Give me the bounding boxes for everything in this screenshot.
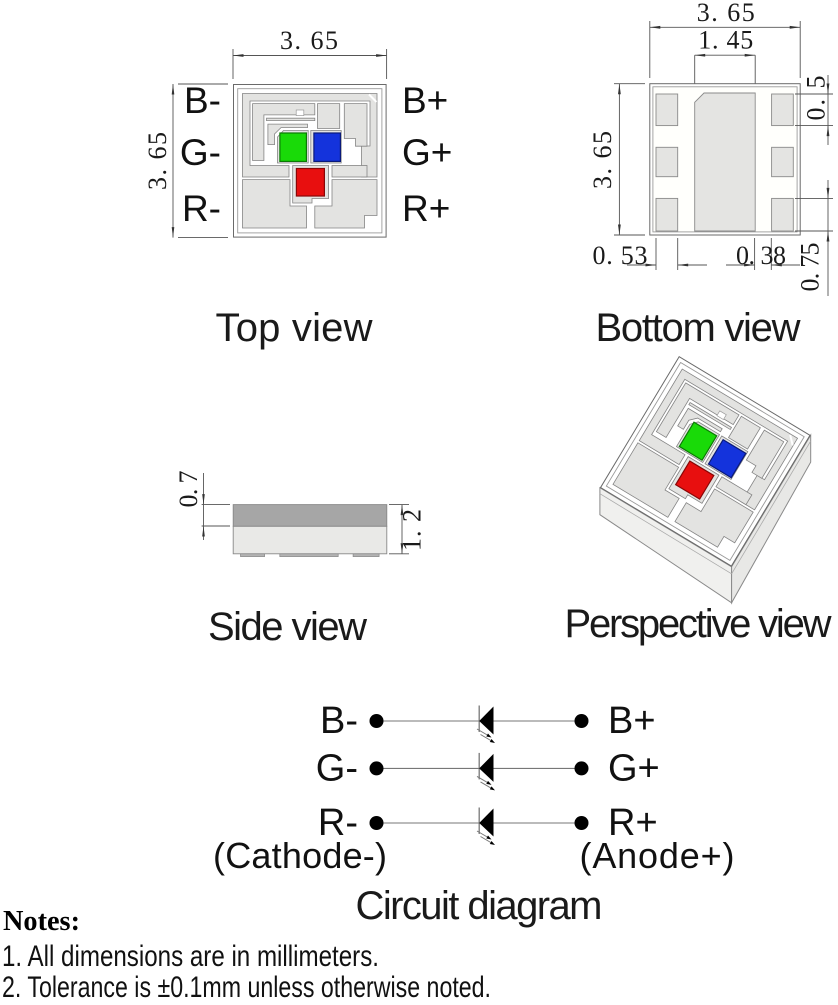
svg-text:1. 2: 1. 2 — [398, 509, 427, 551]
svg-text:3. 65: 3. 65 — [143, 132, 172, 190]
svg-text:3. 65: 3. 65 — [697, 0, 755, 27]
svg-text:0. 53: 0. 53 — [593, 241, 648, 270]
svg-text:0. 7: 0. 7 — [174, 471, 203, 508]
svg-text:B+: B+ — [402, 80, 448, 121]
svg-text:0. 75: 0. 75 — [796, 243, 825, 292]
svg-text:Side view: Side view — [208, 605, 367, 649]
svg-text:Bottom view: Bottom view — [596, 306, 801, 350]
svg-text:B-: B- — [184, 80, 221, 121]
svg-text:2. Tolerance is ±0.1mm unless: 2. Tolerance is ±0.1mm unless otherwise … — [2, 971, 491, 1000]
svg-text:G-: G- — [180, 132, 221, 173]
svg-text:Notes:: Notes: — [3, 905, 80, 937]
svg-text:0. 5: 0. 5 — [802, 76, 831, 121]
svg-text:1. All dimensions are in milli: 1. All dimensions are in millimeters. — [2, 940, 379, 973]
svg-text:G+: G+ — [608, 747, 660, 789]
svg-text:3. 65: 3. 65 — [588, 131, 617, 189]
svg-text:R+: R+ — [402, 188, 450, 229]
svg-text:(Anode+): (Anode+) — [580, 835, 735, 876]
svg-text:3. 65: 3. 65 — [280, 26, 338, 55]
svg-text:Perspective view: Perspective view — [565, 602, 832, 646]
svg-text:1. 45: 1. 45 — [698, 26, 753, 55]
svg-text:G+: G+ — [402, 132, 452, 173]
svg-text:Circuit diagram: Circuit diagram — [356, 884, 603, 928]
svg-text:0. 38: 0. 38 — [736, 241, 786, 270]
svg-text:G-: G- — [316, 747, 358, 789]
svg-text:R-: R- — [182, 188, 221, 229]
svg-text:B+: B+ — [608, 700, 656, 742]
svg-text:Top view: Top view — [216, 306, 373, 350]
svg-text:(Cathode-): (Cathode-) — [213, 835, 387, 876]
svg-text:B-: B- — [320, 700, 358, 742]
